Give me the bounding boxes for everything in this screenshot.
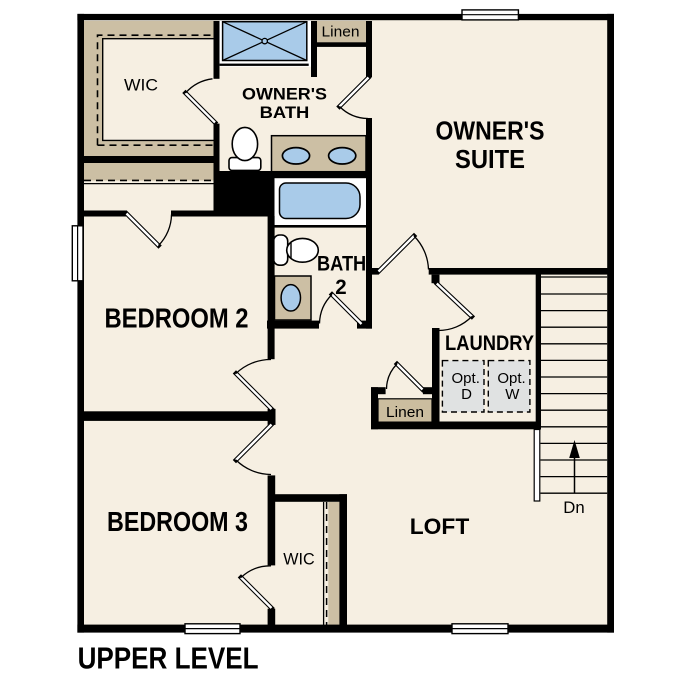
svg-text:D: D [461,386,472,403]
svg-text:WIC: WIC [283,550,314,569]
svg-text:Opt.: Opt. [452,370,480,387]
svg-text:WIC: WIC [124,75,158,94]
svg-text:2: 2 [335,276,346,299]
svg-text:W: W [505,386,520,403]
svg-text:BATH: BATH [317,253,366,276]
svg-text:BATH: BATH [260,103,310,122]
svg-text:LAUNDRY: LAUNDRY [445,332,534,355]
svg-text:UPPER LEVEL: UPPER LEVEL [78,641,259,676]
svg-text:Opt.: Opt. [497,370,525,387]
svg-text:Linen: Linen [386,404,424,421]
svg-text:Dn: Dn [563,498,584,517]
svg-text:Linen: Linen [322,24,360,41]
svg-text:BEDROOM 3: BEDROOM 3 [107,506,248,537]
svg-text:SUITE: SUITE [455,144,525,174]
svg-text:OWNER'S: OWNER'S [436,116,545,146]
svg-text:BEDROOM 2: BEDROOM 2 [105,302,249,333]
svg-text:LOFT: LOFT [410,514,470,539]
svg-text:OWNER'S: OWNER'S [242,85,327,104]
